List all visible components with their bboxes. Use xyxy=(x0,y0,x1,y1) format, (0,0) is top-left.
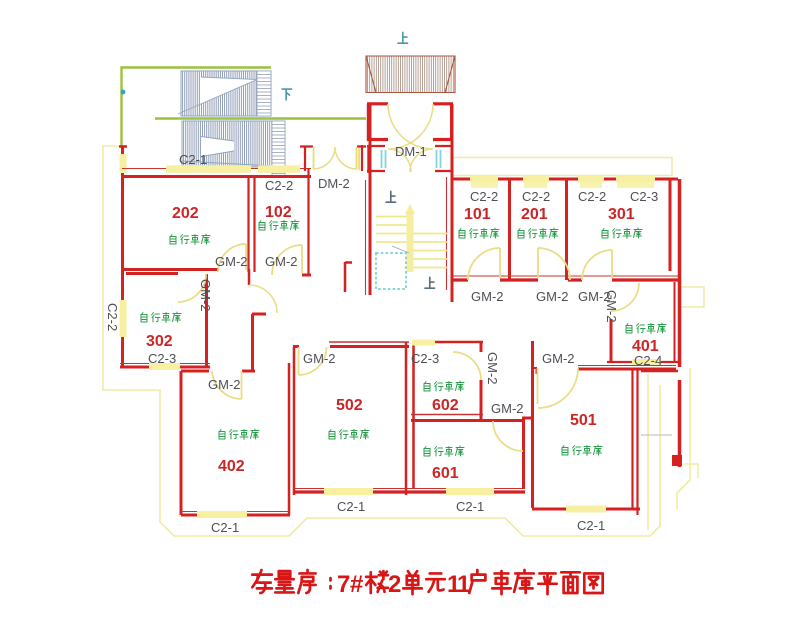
svg-text:C2-3: C2-3 xyxy=(411,351,439,366)
svg-text:401: 401 xyxy=(632,338,659,355)
svg-text:C2-4: C2-4 xyxy=(634,353,662,368)
svg-text:GM-2: GM-2 xyxy=(604,290,619,323)
svg-text:GM-2: GM-2 xyxy=(491,401,524,416)
svg-text:C2-2: C2-2 xyxy=(522,189,550,204)
svg-text:601: 601 xyxy=(432,465,459,482)
svg-text:GM-2: GM-2 xyxy=(542,351,575,366)
svg-text:GM-2: GM-2 xyxy=(265,254,298,269)
svg-text:7: 7 xyxy=(337,571,350,598)
svg-text:301: 301 xyxy=(608,206,635,223)
svg-text:DM-1: DM-1 xyxy=(395,144,427,159)
svg-text:201: 201 xyxy=(521,206,548,223)
svg-text:GM-2: GM-2 xyxy=(198,279,213,312)
svg-text:DM-2: DM-2 xyxy=(318,176,350,191)
svg-text:C2-1: C2-1 xyxy=(456,499,484,514)
svg-text:C2-2: C2-2 xyxy=(105,303,120,331)
svg-text:101: 101 xyxy=(464,206,491,223)
svg-text:C2-3: C2-3 xyxy=(630,189,658,204)
svg-text:C2-3: C2-3 xyxy=(148,351,176,366)
svg-text:C2-1: C2-1 xyxy=(211,520,239,535)
svg-text:GM-2: GM-2 xyxy=(471,289,504,304)
svg-text:302: 302 xyxy=(146,333,173,350)
svg-text:GM-2: GM-2 xyxy=(208,377,241,392)
svg-text:C2-1: C2-1 xyxy=(179,152,207,167)
svg-text:C2-1: C2-1 xyxy=(337,499,365,514)
svg-text:202: 202 xyxy=(172,205,199,222)
svg-text:GM-2: GM-2 xyxy=(215,254,248,269)
svg-text:C2-2: C2-2 xyxy=(265,178,293,193)
svg-text:602: 602 xyxy=(432,397,459,414)
svg-text:GM-2: GM-2 xyxy=(536,289,569,304)
svg-text:C2-1: C2-1 xyxy=(577,518,605,533)
svg-text:402: 402 xyxy=(218,458,245,475)
svg-text:2: 2 xyxy=(388,571,401,598)
svg-text:C2-2: C2-2 xyxy=(578,189,606,204)
svg-text:502: 502 xyxy=(336,397,363,414)
svg-text:501: 501 xyxy=(570,412,597,429)
svg-text:GM-2: GM-2 xyxy=(303,351,336,366)
svg-text:C2-2: C2-2 xyxy=(470,189,498,204)
svg-text:102: 102 xyxy=(265,204,292,221)
svg-text:#: # xyxy=(350,571,363,598)
svg-text:GM-2: GM-2 xyxy=(485,352,500,385)
